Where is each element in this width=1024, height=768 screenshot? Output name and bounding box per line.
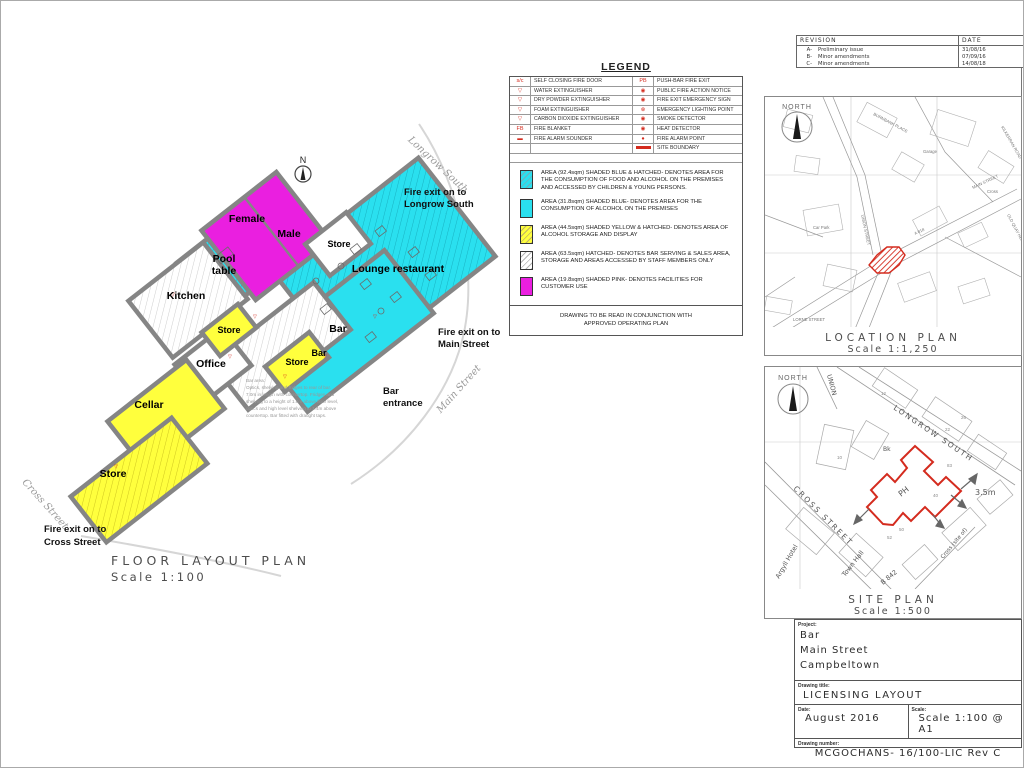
label-store-top: Store [327,239,350,249]
exit-main-1: Fire exit on to [438,327,500,338]
svg-text:7.0m in length with countertop: 7.0m in length with countertop. Fridges … [246,392,335,397]
location-plan-caption: LOCATION PLAN Scale 1:1,250 [765,332,1021,355]
water-extinguisher-icon: ▽ [510,87,531,96]
location-site-boundary [869,247,905,273]
svg-text:PH: PH [897,485,911,499]
title-block: Project: Bar Main Street Campbeltown Dra… [794,619,1022,748]
area-key-row: AREA (44.5sqm) SHADED YELLOW & HATCHED- … [520,225,732,244]
svg-text:Optics, shelving and fridges t: Optics, shelving and fridges to rear of … [246,385,331,390]
title-block-drawing-title: Drawing title: LICENSING LAYOUT [795,681,1021,705]
push-bar-icon: PB [633,77,654,86]
area-key-row: AREA (92.4sqm) SHADED BLUE & HATCHED- DE… [520,170,732,192]
floor-caption-scale: Scale 1:100 [111,570,310,584]
fire-blanket-icon: FB [510,125,531,134]
svg-text:Cross: Cross [987,189,998,194]
svg-text:▽: ▽ [373,314,377,320]
north-label: N [300,155,307,165]
cyan-swatch [520,199,533,218]
self-closing-door-icon: s/c [510,77,531,86]
svg-text:Town Hall: Town Hall [840,549,866,579]
svg-text:shelving to a height of 1.0m a: shelving to a height of 1.0m above floor… [246,399,338,404]
white-hatched-swatch [520,251,533,270]
svg-text:B 842: B 842 [879,568,899,586]
svg-text:Bk: Bk [883,446,891,453]
location-buildings [765,102,1014,314]
svg-text:Garage: Garage [923,149,938,154]
project-street: Main Street [795,643,1021,658]
svg-text:NORTH: NORTH [782,104,812,111]
exit-longrow-2: Longrow South [404,199,474,210]
label-female: Female [229,213,265,225]
legend-row: FB FIRE BLANKET ◉ HEAT DETECTOR [510,125,742,135]
legend-blank-row [510,154,742,163]
svg-text:Argyll Hotel: Argyll Hotel [774,543,800,580]
label-store-bottom: Store [100,468,127,480]
legend-row: ▬ FIRE ALARM SOUNDER ● FIRE ALARM POINT [510,135,742,145]
site-compass: NORTH [778,375,808,414]
exit-cross-2: Cross Street [44,537,101,548]
legend-row: ▽ CARBON DIOXIDE EXTINGUISHER ◉ SMOKE DE… [510,115,742,125]
date-cell: Date: August 2016 [795,705,908,738]
label-kitchen: Kitchen [167,290,206,302]
bar-entrance-2: entrance [383,398,423,409]
revision-row: B- Minor amendments 07/09/16 [797,53,1023,60]
legend-title: LEGEND [509,61,743,73]
revision-row: A- Preliminary issue 31/08/16 [797,46,1023,53]
svg-text:40: 40 [933,493,939,498]
svg-text:countertop. Bar fitted with dr: countertop. Bar fitted with draught taps… [246,413,326,418]
floor-caption-title: FLOOR LAYOUT PLAN [111,553,310,568]
svg-text:22: 22 [945,427,951,432]
scale-cell: Scale: Scale 1:100 @ A1 [908,705,1022,738]
drawing-scale: Scale 1:100 @ A1 [909,713,1022,738]
label-store-mid1: Store [217,325,240,335]
svg-text:12: 12 [881,391,887,396]
location-map: NORTH MAIN STREET UNION STREET BURNBANK … [765,97,1021,327]
foam-extinguisher-icon: ▽ [510,106,531,115]
svg-text:▽: ▽ [283,374,287,380]
emergency-light-icon: ⊗ [633,106,654,115]
bar-entrance-1: Bar [383,386,399,397]
pink-swatch [520,277,533,296]
svg-text:optics and high level shelving: optics and high level shelving to 1.4m a… [246,406,337,411]
svg-text:26: 26 [961,415,967,420]
location-compass: NORTH [782,104,812,142]
revision-block: REVISION DATE A- Preliminary issue 31/08… [796,35,1024,68]
svg-text:UNION: UNION [825,373,838,396]
fire-action-notice-icon: ◉ [633,87,654,96]
building-rooms [71,158,496,542]
exit-cross-1: Fire exit on to [44,524,106,535]
label-pool-2: table [212,265,237,277]
drawing-sheet: ▽▽ ▽▽ ▽▽ ▽▽ N Female Male Pool table Kit… [0,0,1024,768]
svg-text:OLD QUAY HEAD: OLD QUAY HEAD [1006,213,1021,245]
svg-text:52: 52 [887,535,893,540]
legend-area-key: AREA (92.4sqm) SHADED BLUE & HATCHED- DE… [510,163,742,305]
site-map: LONGROW SOUTH CROSS STREET UNION Town Ha… [765,367,1021,589]
svg-text:▽: ▽ [253,314,257,320]
co2-extinguisher-icon: ▽ [510,115,531,124]
yellow-hatched-swatch [520,225,533,244]
legend-row-site-boundary: SITE BOUNDARY [510,144,742,154]
svg-text:83: 83 [947,463,953,468]
title-block-date-scale: Date: August 2016 Scale: Scale 1:100 @ A… [795,705,1021,739]
cyan-hatched-swatch [520,170,533,189]
site-boundary-line [633,144,654,153]
svg-text:NORTH: NORTH [778,375,808,382]
label-office: Office [196,358,226,370]
legend-box: s/c SELF CLOSING FIRE DOOR PB PUSH-BAR F… [509,76,743,336]
svg-text:10: 10 [837,455,843,460]
revision-header: REVISION DATE [797,36,1023,46]
svg-text:3.5m: 3.5m [975,488,996,497]
project-name: Bar [795,628,1021,643]
legend: LEGEND s/c SELF CLOSING FIRE DOOR PB PUS… [509,61,743,336]
label-male: Male [277,228,301,240]
svg-text:Cross (site of): Cross (site of) [940,527,969,560]
drawing-number: MCGOCHANS- 16/100-LIC Rev C [795,747,1021,761]
dry-powder-extinguisher-icon: ▽ [510,96,531,105]
heat-detector-icon: ◉ [633,125,654,134]
smoke-detector-icon: ◉ [633,115,654,124]
exit-main-2: Main Street [438,339,490,350]
legend-row: ▽ WATER EXTINGUISHER ◉ PUBLIC FIRE ACTIO… [510,87,742,97]
legend-row: ▽ DRY POWDER EXTINGUISHER ◉ FIRE EXIT EM… [510,96,742,106]
area-key-row: AREA (63.5sqm) HATCHED- DENOTES BAR SERV… [520,251,732,270]
area-key-row: AREA (31.8sqm) SHADED BLUE- DENOTES AREA… [520,199,732,218]
svg-text:LORNE STREET: LORNE STREET [793,317,826,322]
legend-row: ▽ FOAM EXTINGUISHER ⊗ EMERGENCY LIGHTING… [510,106,742,116]
location-plan: NORTH MAIN STREET UNION STREET BURNBANK … [764,96,1022,356]
svg-text:Car Park: Car Park [813,225,830,230]
floor-plan-caption: FLOOR LAYOUT PLAN Scale 1:100 [111,553,310,584]
label-pool-1: Pool [213,253,236,265]
fire-alarm-point-icon: ● [633,135,654,144]
drawing-date: August 2016 [795,713,908,727]
legend-note: DRAWING TO BE READ IN CONJUNCTION WITH A… [510,305,742,335]
floor-plan: ▽▽ ▽▽ ▽▽ ▽▽ N Female Male Pool table Kit… [21,106,541,606]
title-block-number: Drawing number: MCGOCHANS- 16/100-LIC Re… [795,739,1021,761]
svg-text:MAIN STREET: MAIN STREET [971,173,999,190]
svg-text:Bar area:: Bar area: [246,378,265,383]
svg-text:50: 50 [899,527,905,532]
revision-row: C- Minor amendments 14/08/18 [797,60,1023,67]
area-key-row: AREA (19.8sqm) SHADED PINK- DENOTES FACI… [520,277,732,296]
site-plan: LONGROW SOUTH CROSS STREET UNION Town Ha… [764,366,1022,619]
drawing-title: LICENSING LAYOUT [795,689,1021,704]
site-boundary [867,446,961,525]
fire-alarm-sounder-icon: ▬ [510,135,531,144]
legend-row: s/c SELF CLOSING FIRE DOOR PB PUSH-BAR F… [510,77,742,87]
svg-text:KILKERRAN ROAD: KILKERRAN ROAD [1000,125,1021,160]
north-arrow: N [295,155,311,182]
label-cellar: Cellar [134,399,163,411]
svg-text:▽: ▽ [228,354,232,360]
project-town: Campbeltown [795,658,1021,673]
svg-text:CROSS STREET: CROSS STREET [792,484,856,548]
svg-text:UNION STREET: UNION STREET [860,214,871,246]
title-block-project: Project: Bar Main Street Campbeltown [795,620,1021,681]
label-bar: Bar [329,323,347,335]
label-lounge: Lounge restaurant [352,263,445,275]
fire-exit-sign-icon: ◉ [633,96,654,105]
site-buildings [786,368,1013,580]
site-plan-caption: SITE PLAN Scale 1:500 [765,594,1021,617]
label-bar-small: Bar [311,348,327,358]
label-store-mid2: Store [285,357,308,367]
